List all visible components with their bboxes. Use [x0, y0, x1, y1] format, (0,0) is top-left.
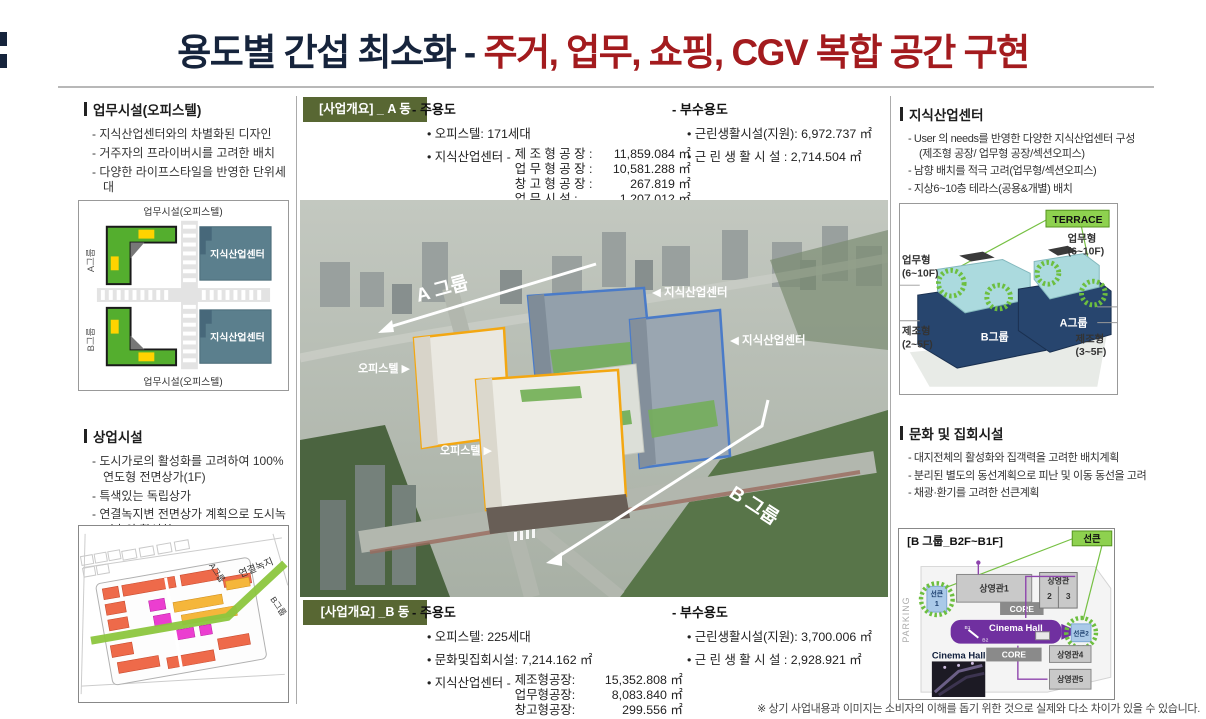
bullet-item: - 거주자의 프라이버시를 고려한 배치 — [92, 146, 289, 162]
render-officetel-label-1: 오피스텔 ▶ — [358, 361, 411, 375]
office-kic-block-diagram-svg: 업무시설(오피스텔) 업무시설(오피스텔) — [79, 201, 288, 390]
kic-prefix: • 지식산업센터 - — [427, 673, 511, 718]
column-divider-left — [296, 96, 297, 704]
diagram-bottom-label: 업무시설(오피스텔) — [143, 375, 222, 388]
use-item: • 오피스텔: 225세대 — [427, 627, 707, 645]
bullet-item: - 특색있는 독립상가 — [92, 489, 289, 505]
bullet-item: - 지상6~10층 테라스(공용&개별) 배치 — [908, 182, 1142, 197]
bullet-item: - 도시가로의 활성화를 고려하여 100%연도형 전면상가(1F) — [92, 454, 289, 486]
section-title: 상업시설 — [84, 426, 289, 446]
siteplan-group-b: B그룹 — [268, 595, 288, 618]
section-title: 문화 및 집회시설 — [900, 423, 1148, 443]
svg-text:선큰2: 선큰2 — [1073, 629, 1089, 638]
terrace-group-a: A그룹 — [1060, 317, 1088, 330]
aerial-render-svg: A 그룹 B 그룹 ◀ 지식산업센터 ◀ 지식산업센터 오피스텔 ▶ 오피스텔 … — [300, 200, 888, 597]
title-bar-icon — [84, 102, 87, 116]
culture-section: 문화 및 집회시설 - 대지전체의 활성화와 집객력을 고려한 배치계획 - 분… — [900, 423, 1148, 504]
bullet-list: - 지식산업센터와의 차별화된 디자인 - 거주자의 프라이버시를 고려한 배치… — [92, 127, 289, 196]
area-label: 업무형공장: — [515, 688, 575, 703]
terrace-group-b: B그룹 — [981, 330, 1009, 343]
area-label: 창고형공장: — [515, 703, 575, 718]
hall-4: 상영관4 — [1049, 646, 1091, 663]
svg-text:지식산업센터: 지식산업센터 — [210, 331, 265, 344]
a-main-use-block: - 주용도 • 오피스텔: 171세대 • 지식산업센터 - 제 조 형 공 장… — [412, 99, 707, 207]
render-kic-label-1: ◀ 지식산업센터 — [652, 285, 728, 299]
bullet-item: - User 의 needs를 반영한 다양한 지식산업센터 구성 (제조형 공… — [908, 132, 1142, 161]
kic-block-bottom: 지식산업센터 — [200, 310, 271, 363]
office-left-range: (6~10F) — [902, 268, 939, 279]
svg-text:TERRACE: TERRACE — [1053, 215, 1103, 226]
aerial-render: A 그룹 B 그룹 ◀ 지식산업센터 ◀ 지식산업센터 오피스텔 ▶ 오피스텔 … — [300, 200, 888, 597]
siteplan-diagram: A그룹 연결녹지 B그룹 — [78, 525, 289, 703]
title-underline — [58, 86, 1154, 88]
section-title-text: 지식산업센터 — [909, 104, 984, 124]
svg-text:선큰: 선큰 — [930, 589, 943, 598]
group-b-label: B그룹 — [85, 327, 96, 351]
bullet-item: - 남향 배치를 적극 고려(업무형/섹션오피스) — [908, 164, 1142, 179]
mfg-right-range: (3~5F) — [1076, 347, 1107, 358]
cinema-photo: Cinema Hall — [932, 650, 986, 697]
b-sub-use-block: - 부수용도 • 근린생활시설(지원): 3,700.006 ㎡ • 근 린 생… — [672, 602, 890, 673]
use-item: • 문화및집회시설: 7,214.162 ㎡ — [427, 650, 707, 668]
hall-2-3: 상영관 2 3 — [1040, 572, 1078, 608]
bullet-list: - 대지전체의 활성화와 집객력을 고려한 배치계획 - 분리된 별도의 동선계… — [908, 451, 1148, 501]
svg-text:상영관1: 상영관1 — [979, 582, 1008, 593]
use-item: • 근린생활시설(지원): 3,700.006 ㎡ — [687, 627, 890, 645]
terrace-diagram: B그룹 A그룹 TERRACE 업무형 (6~10F — [899, 203, 1118, 395]
sunken-badge: 선큰 — [1072, 531, 1112, 546]
slide: 용도별 간섭 최소화 - 주거, 업무, 쇼핑, CGV 복합 공간 구현 업무… — [0, 0, 1206, 719]
svg-text:상영관5: 상영관5 — [1057, 674, 1084, 684]
section-title: 지식산업센터 — [900, 104, 1142, 124]
core-1: CORE — [1000, 602, 1043, 615]
title-right: 주거, 업무, 쇼핑, CGV 복합 공간 구현 — [484, 32, 1029, 73]
sub-use-title: - 부수용도 — [672, 602, 890, 621]
circulation-node — [976, 560, 980, 564]
project-tag-a: [사업개요] _ A 동 — [303, 97, 427, 122]
bullet-item: - 지식산업센터와의 차별화된 디자인 — [92, 127, 289, 143]
area-label: 창 고 형 공 장 : — [515, 177, 593, 192]
terrace-diagram-svg: B그룹 A그룹 TERRACE 업무형 (6~10F — [900, 204, 1117, 394]
terrace-badge: TERRACE — [1046, 210, 1109, 227]
area-label: 업 무 형 공 장 : — [515, 162, 593, 177]
project-tag-b: [사업개요] _B 동 — [303, 600, 427, 625]
area-label: 제조형공장: — [515, 673, 575, 688]
use-item: • 근린생활시설(지원): 6,972.737 ㎡ — [687, 124, 890, 142]
title-bar-icon — [900, 426, 903, 440]
column-divider-right — [890, 96, 891, 704]
hall-1: 상영관1 — [957, 574, 1032, 602]
svg-text:CORE: CORE — [1010, 604, 1035, 614]
render-officetel-label-2: 오피스텔 ▶ — [440, 443, 493, 457]
title-left: 용도별 간섭 최소화 - — [177, 32, 483, 73]
main-use-title: - 주용도 — [412, 99, 707, 118]
office-right-range: (6~10F) — [1068, 247, 1105, 258]
cinema-diagram-title: [B 그룹_B2F~B1F] — [907, 535, 1003, 548]
a-sub-use-block: - 부수용도 • 근린생활시설(지원): 6,972.737 ㎡ • 근 린 생… — [672, 99, 890, 170]
svg-text:3: 3 — [1066, 591, 1071, 601]
section-title: 업무시설(오피스텔) — [84, 99, 289, 119]
bullet-item: - 분리된 별도의 동선계획으로 피난 및 이동 동선을 고려 — [908, 469, 1148, 484]
footnote: ※ 상기 사업내용과 이미지는 소비자의 이해를 돕기 위한 것으로 실제와 다… — [648, 700, 1200, 716]
sub-use-title: - 부수용도 — [672, 99, 890, 118]
bullet-item: - 대지전체의 활성화와 집객력을 고려한 배치계획 — [908, 451, 1148, 466]
photo-label: Cinema Hall — [932, 650, 986, 660]
section-title-text: 업무시설(오피스텔) — [93, 99, 201, 119]
hall-5: 상영관5 — [1049, 669, 1091, 689]
bullet-list: - User 의 needs를 반영한 다양한 지식산업센터 구성 (제조형 공… — [908, 132, 1142, 196]
mfg-right-label: 제조형 — [1076, 332, 1105, 345]
diagram-top-label: 업무시설(오피스텔) — [143, 205, 222, 218]
svg-text:선큰: 선큰 — [1083, 533, 1101, 544]
section-title-text: 문화 및 집회시설 — [909, 423, 1003, 443]
officetel-l-shape-bottom — [107, 308, 176, 365]
svg-text:CORE: CORE — [1002, 649, 1027, 659]
parking-label: PARKING — [901, 596, 911, 642]
bullet-item: - 채광·환기를 고려한 선큰계획 — [908, 486, 1148, 501]
section-title-text: 상업시설 — [93, 426, 143, 446]
office-right-label: 업무형 — [1068, 232, 1097, 245]
page-title: 용도별 간섭 최소화 - 주거, 업무, 쇼핑, CGV 복합 공간 구현 — [0, 22, 1206, 76]
title-bar-icon — [84, 429, 87, 443]
main-use-title: - 주용도 — [412, 602, 707, 621]
use-item: • 근 린 생 활 시 설 : 2,928.921 ㎡ — [687, 650, 890, 668]
area-label: 제 조 형 공 장 : — [515, 147, 593, 162]
office-facility-section: 업무시설(오피스텔) - 지식산업센터와의 차별화된 디자인 - 거주자의 프라… — [84, 99, 289, 199]
use-item: • 오피스텔: 171세대 — [427, 124, 707, 142]
office-left-label: 업무형 — [902, 253, 931, 266]
cinema-diagram-svg: PARKING 상영관1 CORE 상영관 2 3 — [899, 529, 1114, 699]
kic-area-rows: • 지식산업센터 - 제 조 형 공 장 :11,859.084 ㎡ 업 무 형… — [427, 147, 707, 207]
svg-text:상영관4: 상영관4 — [1057, 649, 1084, 659]
svg-text:지식산업센터: 지식산업센터 — [210, 247, 265, 260]
kiosk-box — [1036, 632, 1050, 640]
use-item: • 근 린 생 활 시 설 : 2,714.504 ㎡ — [687, 147, 890, 165]
b2-label: B2 — [982, 638, 988, 644]
mfg-left-label: 제조형 — [902, 325, 931, 338]
core-2: CORE — [986, 648, 1041, 662]
mfg-left-range: (2~5F) — [902, 339, 933, 350]
officetel-building-front — [476, 370, 630, 534]
kic-section: 지식산업센터 - User 의 needs를 반영한 다양한 지식산업센터 구성… — [900, 104, 1142, 199]
kic-building-right — [630, 310, 730, 468]
area-value: 267.819 ㎡ — [630, 177, 691, 192]
area-value: 15,352.808 ㎡ — [605, 673, 683, 688]
kic-block-top: 지식산업센터 — [200, 227, 271, 280]
bullet-item: - 다양한 라이프스타일을 반영한 단위세대 — [92, 165, 289, 197]
svg-text:1: 1 — [935, 599, 939, 608]
svg-text:Cinema Hall: Cinema Hall — [989, 623, 1043, 633]
office-kic-block-diagram: 업무시설(오피스텔) 업무시설(오피스텔) — [78, 200, 289, 391]
title-bar-icon — [900, 107, 903, 121]
group-a-label: A그룹 — [85, 248, 96, 272]
siteplan-svg: A그룹 연결녹지 B그룹 — [79, 526, 288, 702]
svg-text:2: 2 — [1047, 591, 1052, 601]
officetel-l-shape-top — [107, 227, 176, 284]
render-kic-label-2: ◀ 지식산업센터 — [730, 333, 806, 347]
cinema-diagram: PARKING 상영관1 CORE 상영관 2 3 — [898, 528, 1115, 700]
kic-prefix: • 지식산업센터 - — [427, 147, 511, 207]
